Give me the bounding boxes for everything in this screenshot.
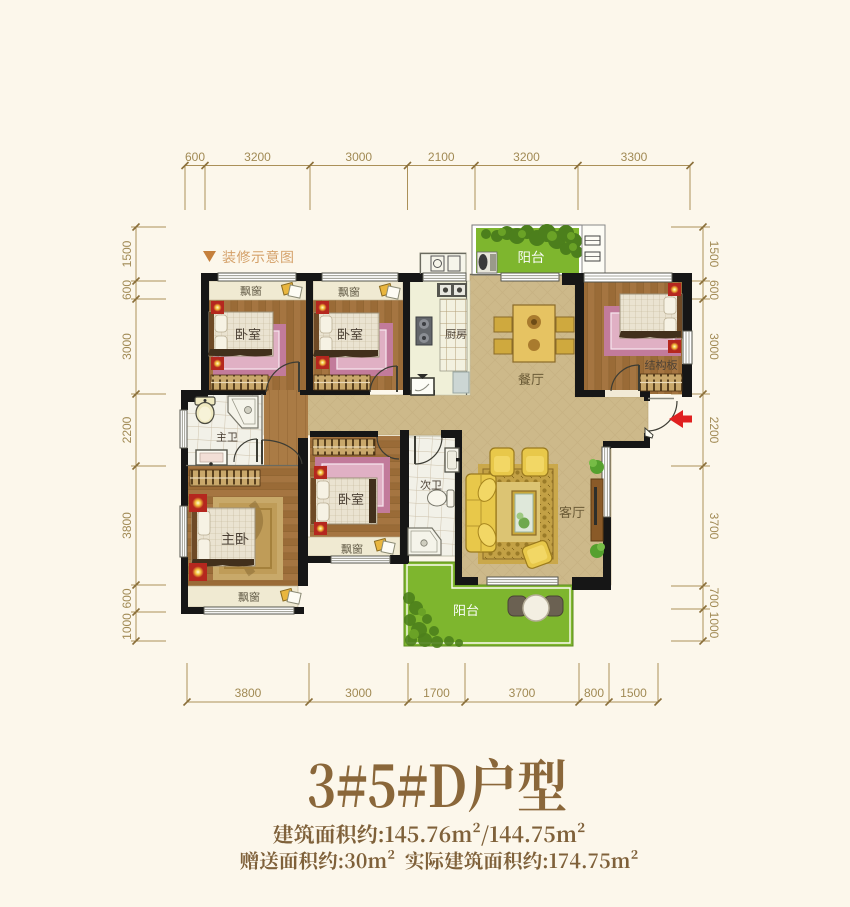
svg-text:3200: 3200 xyxy=(513,150,540,164)
svg-text:3000: 3000 xyxy=(345,150,372,164)
svg-text:3800: 3800 xyxy=(120,512,134,539)
svg-text:1700: 1700 xyxy=(423,686,450,700)
svg-text:3700: 3700 xyxy=(509,686,536,700)
svg-text:2200: 2200 xyxy=(120,416,134,443)
svg-text:3000: 3000 xyxy=(120,333,134,360)
svg-text:3800: 3800 xyxy=(235,686,262,700)
svg-text:1000: 1000 xyxy=(120,613,134,640)
svg-text:1500: 1500 xyxy=(620,686,647,700)
svg-text:800: 800 xyxy=(584,686,604,700)
svg-text:600: 600 xyxy=(120,280,134,300)
svg-text:1500: 1500 xyxy=(120,240,134,267)
svg-text:600: 600 xyxy=(707,280,721,300)
svg-text:3700: 3700 xyxy=(707,513,721,540)
svg-text:1500: 1500 xyxy=(707,241,721,268)
svg-text:3000: 3000 xyxy=(345,686,372,700)
svg-text:600: 600 xyxy=(120,588,134,608)
svg-text:3200: 3200 xyxy=(244,150,271,164)
svg-text:2100: 2100 xyxy=(428,150,455,164)
svg-text:600: 600 xyxy=(185,150,205,164)
svg-text:2200: 2200 xyxy=(707,417,721,444)
svg-text:700: 700 xyxy=(707,587,721,607)
svg-text:3000: 3000 xyxy=(707,333,721,360)
svg-text:1000: 1000 xyxy=(707,612,721,639)
svg-text:3300: 3300 xyxy=(621,150,648,164)
